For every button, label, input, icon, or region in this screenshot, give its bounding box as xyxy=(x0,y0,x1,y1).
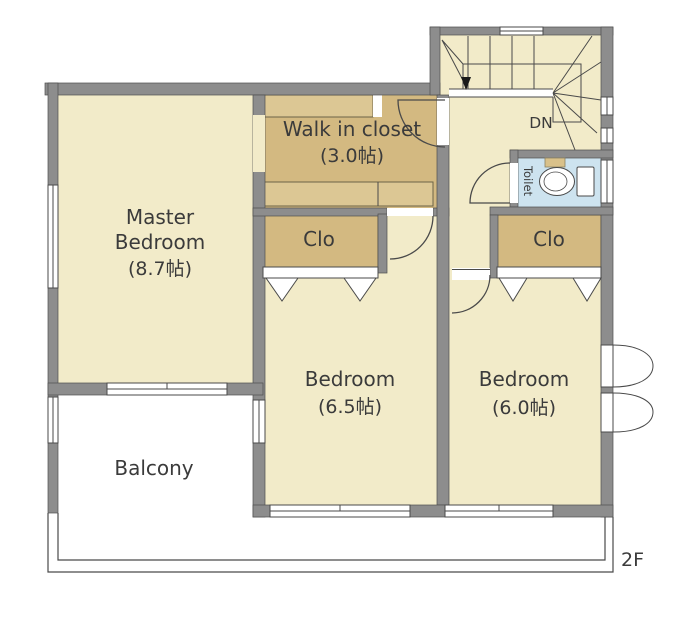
master-bedroom-label-line2: Bedroom xyxy=(115,230,205,254)
wall-center-vertical xyxy=(437,95,449,505)
wall-toilet-top xyxy=(510,150,613,158)
master-bedroom-size-label: (8.7帖) xyxy=(128,258,192,280)
opening-toilet-door xyxy=(510,163,518,203)
bedroom-right-size-label: (6.0帖) xyxy=(492,397,556,419)
toilet-label: Toilet xyxy=(521,165,535,197)
bedroom-right-label: Bedroom xyxy=(479,367,569,391)
wall-closet-left-side xyxy=(378,214,387,273)
opening-wic-door xyxy=(437,98,449,145)
wall-toilet-bottom xyxy=(490,207,613,215)
wall-wic-bottom-left xyxy=(253,208,387,216)
closet-right-door-track xyxy=(497,267,601,278)
toilet-shelf xyxy=(545,158,565,167)
closet-left-label: Clo xyxy=(303,227,335,251)
opening-bedroom-center-door xyxy=(387,208,433,216)
window-casement-gap-2 xyxy=(601,393,613,432)
wall-top-main xyxy=(45,83,440,95)
closet-left-door-track xyxy=(263,267,378,278)
bedroom-center-label: Bedroom xyxy=(305,367,395,391)
stair-divider xyxy=(449,89,553,97)
floor-plan-drawing: DN Master Bedroom (8.7帖) Walk in closet … xyxy=(0,0,676,631)
master-bedroom-label-line1: Master xyxy=(126,205,195,229)
walk-in-closet-label: Walk in closet xyxy=(283,117,421,141)
wic-hanger-top xyxy=(263,95,373,117)
opening-master-to-wic xyxy=(253,115,265,172)
wic-hanger-gap xyxy=(373,95,382,117)
bedroom-center-size-label: (6.5帖) xyxy=(318,396,382,418)
floor-label: 2F xyxy=(621,549,644,571)
closet-right-label: Clo xyxy=(533,227,565,251)
wall-outer-left xyxy=(48,83,58,513)
wic-hanger-bottom xyxy=(263,182,433,206)
walk-in-closet-size-label: (3.0帖) xyxy=(320,145,384,167)
stairs-down-label: DN xyxy=(529,114,553,132)
wall-stair-left xyxy=(430,27,440,95)
toilet-tank xyxy=(577,167,594,196)
window-casement-gap-1 xyxy=(601,345,613,387)
floor-plan-2f: DN Master Bedroom (8.7帖) Walk in closet … xyxy=(0,0,676,631)
balcony-label: Balcony xyxy=(114,456,193,480)
